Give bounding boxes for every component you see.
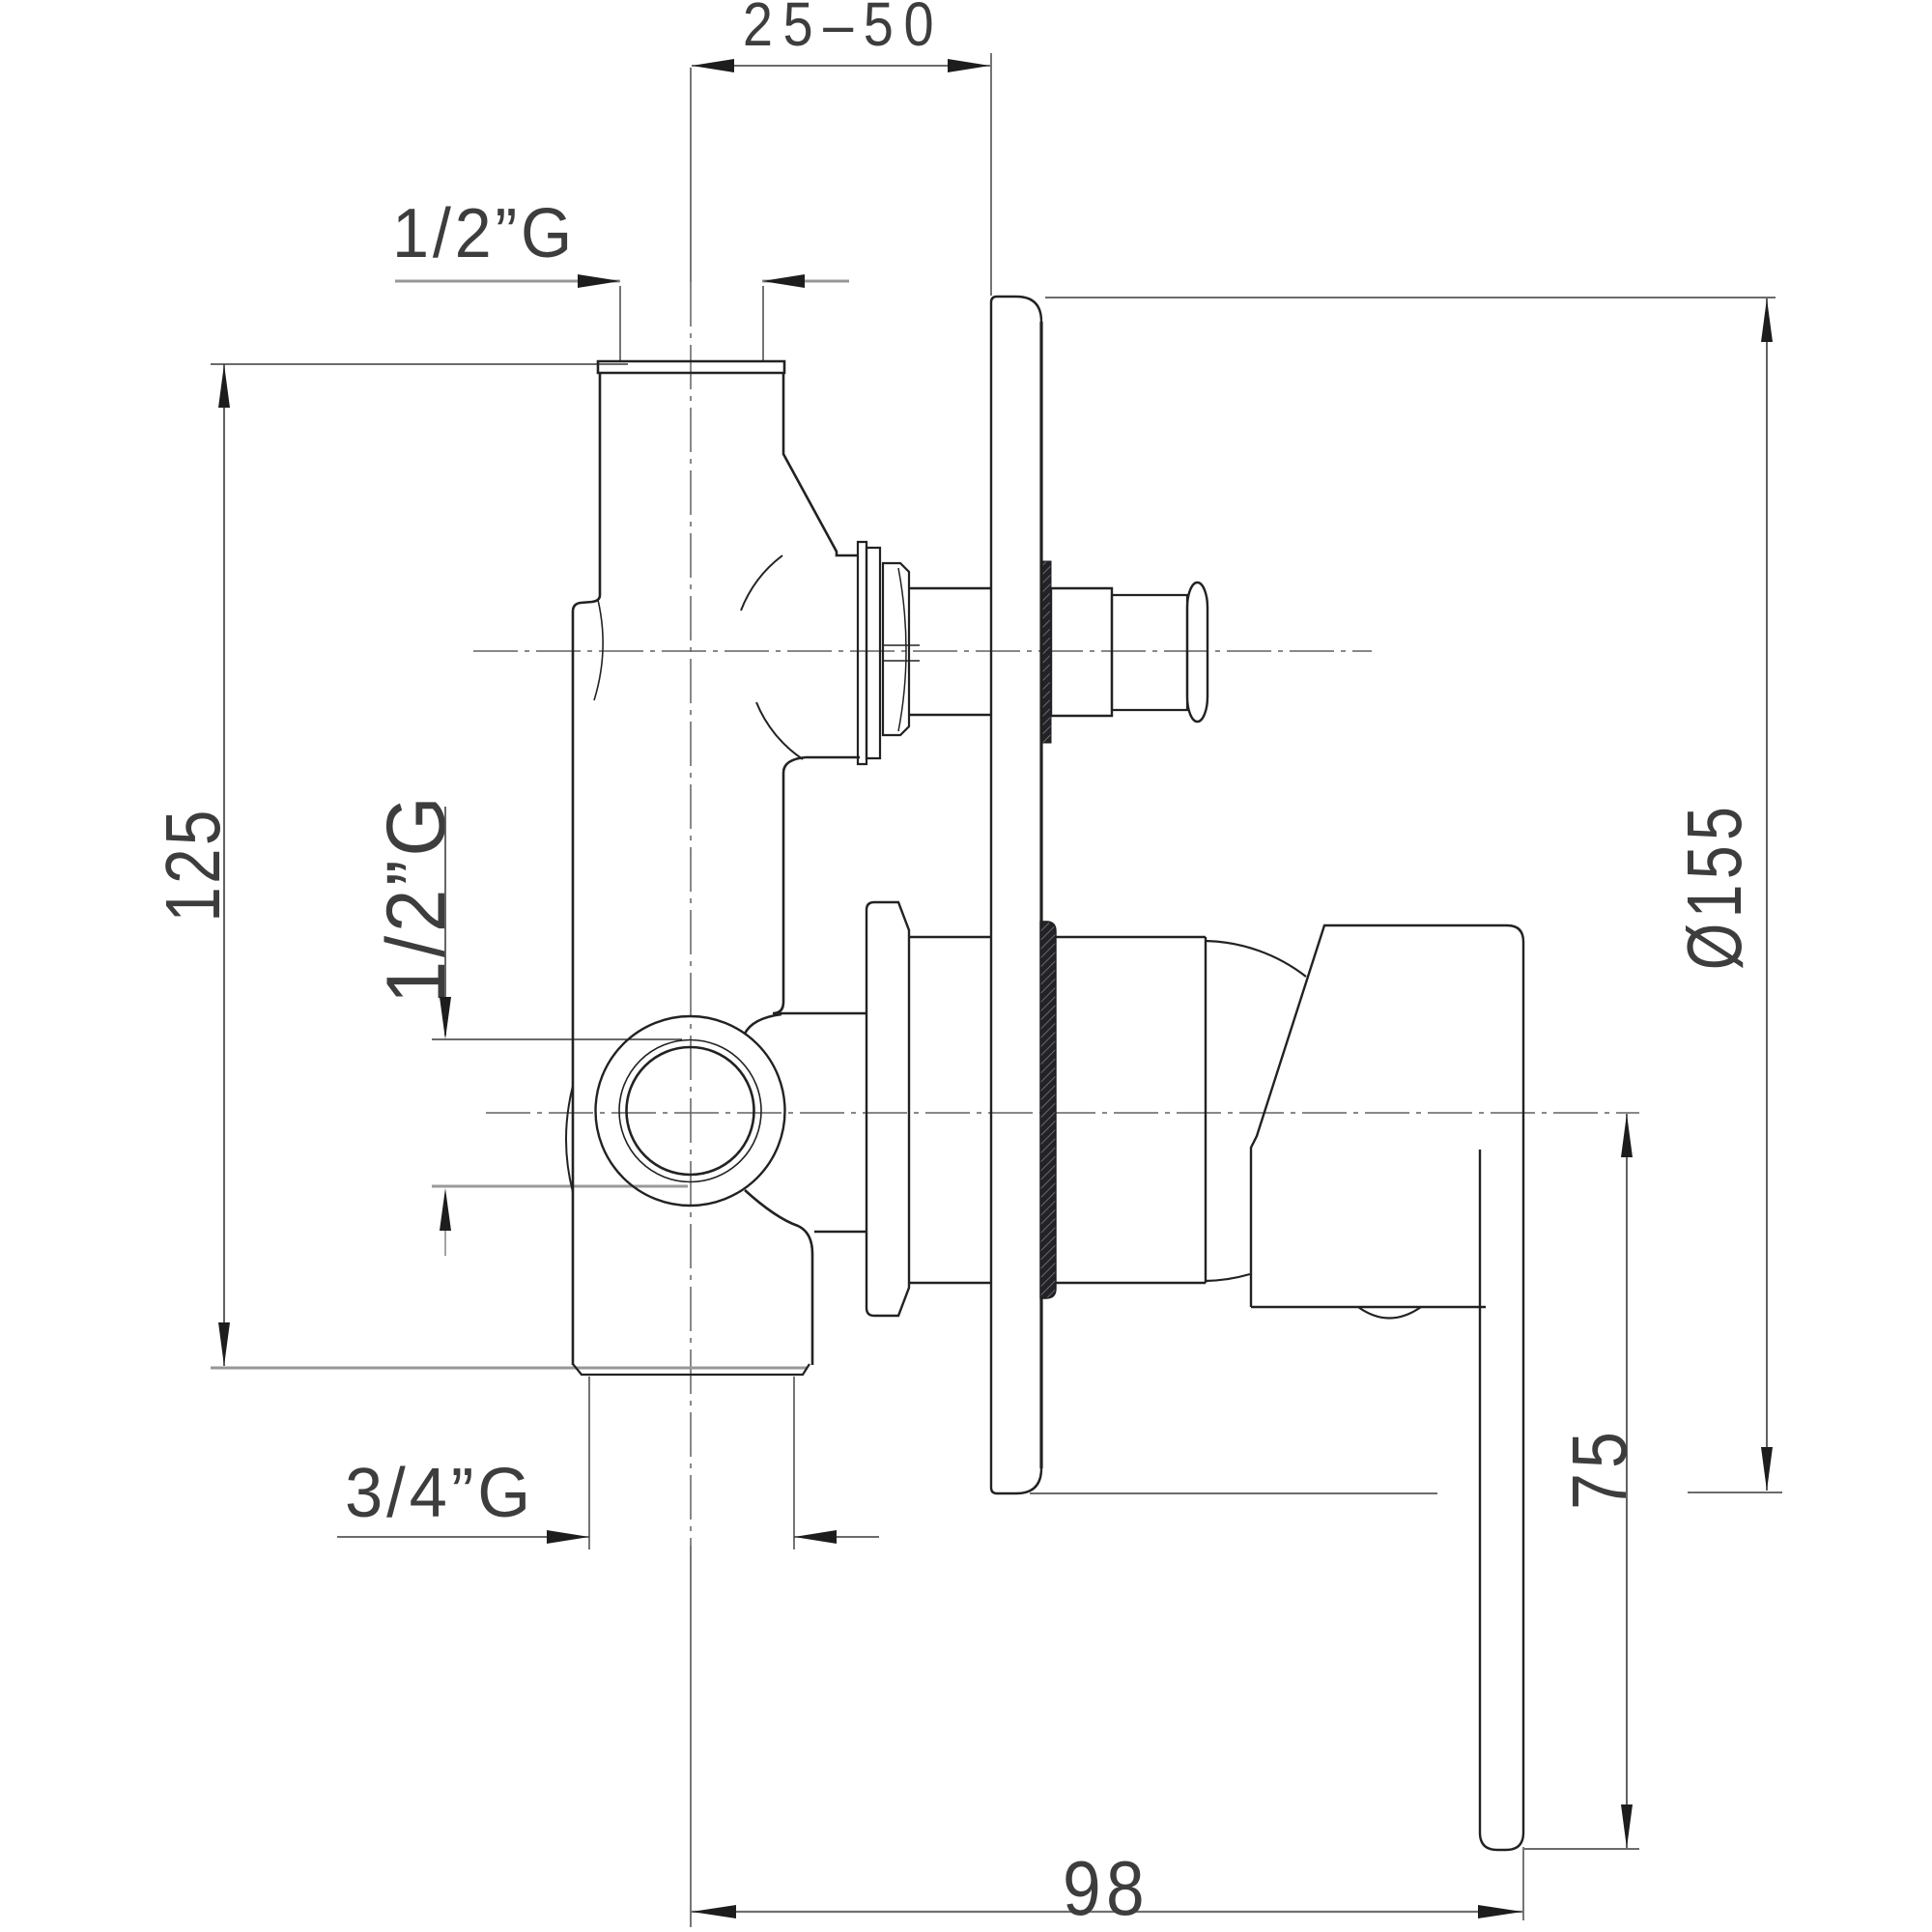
svg-text:1/2”G: 1/2”G: [369, 793, 462, 1005]
svg-text:Ø155: Ø155: [1672, 802, 1758, 970]
svg-text:75: 75: [1556, 1427, 1642, 1510]
svg-text:3/4”G: 3/4”G: [345, 1454, 534, 1532]
svg-text:98: 98: [1063, 1845, 1150, 1932]
svg-text:125: 125: [150, 807, 237, 922]
svg-text:1/2”G: 1/2”G: [392, 193, 576, 271]
svg-text:25–50: 25–50: [743, 0, 944, 59]
